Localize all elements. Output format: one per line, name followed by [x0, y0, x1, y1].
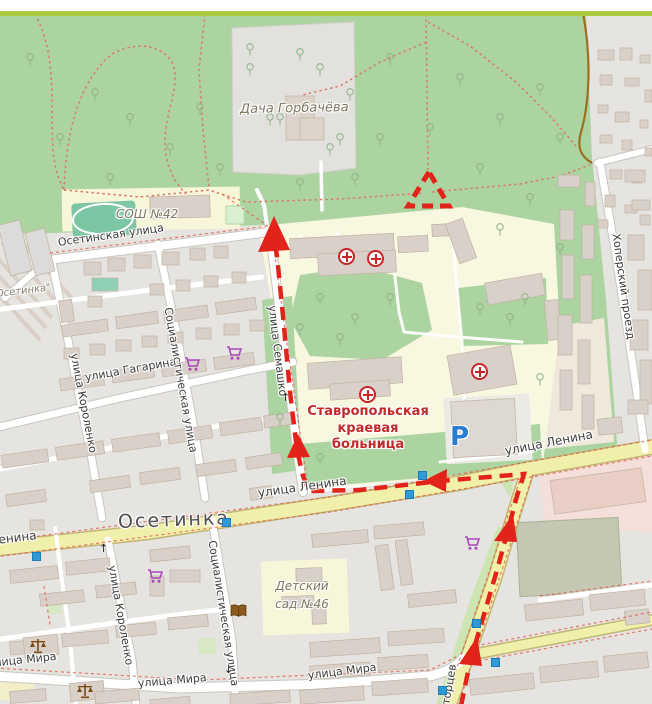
label-hospital-line1: Ставропольская — [298, 405, 438, 418]
label-school-42: СОШ №42 — [116, 208, 178, 220]
label-osetinka-district: Осетинка — [118, 509, 231, 532]
top-road-bar — [0, 11, 652, 16]
hospital-cross-icon[interactable] — [338, 248, 355, 265]
bus-stop-icon[interactable] — [405, 490, 414, 499]
hospital-cross-icon[interactable] — [471, 363, 488, 380]
label-dacha-gorbacheva: Дача Горбачёва — [240, 101, 349, 116]
courthouse-scales-icon[interactable] — [29, 637, 47, 659]
supermarket-cart-icon[interactable] — [464, 535, 480, 555]
label-detsky-sad-line2: сад №46 — [262, 598, 342, 610]
bus-stop-icon[interactable] — [438, 686, 447, 695]
courthouse-scales-icon[interactable] — [76, 682, 94, 704]
hospital-cross-icon[interactable] — [359, 386, 376, 403]
semashko-oneway-arrow: ↑ — [281, 392, 290, 403]
hospital-cross-icon[interactable] — [367, 250, 384, 267]
korolenko-oneway-arrow: ↑ — [99, 543, 108, 554]
library-book-icon[interactable] — [230, 604, 247, 623]
supermarket-cart-icon[interactable] — [184, 356, 200, 376]
map-canvas[interactable]: Дача Горбачёва СОШ №42 Осетинская улица … — [0, 0, 652, 704]
supermarket-cart-icon[interactable] — [226, 345, 242, 365]
label-hospital-line3: больница — [298, 438, 438, 451]
bus-stop-icon[interactable] — [32, 552, 41, 561]
label-detsky-sad-line1: Детский — [262, 580, 342, 592]
sotsialisticheskaya-oneway-arrow: ↓ — [224, 664, 233, 675]
supermarket-cart-icon[interactable] — [147, 568, 163, 588]
bus-stop-icon[interactable] — [491, 658, 500, 667]
bus-stop-icon[interactable] — [418, 471, 427, 480]
bus-stop-icon[interactable] — [222, 518, 231, 527]
label-hospital-line2: краевая — [298, 422, 438, 435]
bus-stop-icon[interactable] — [472, 619, 481, 628]
parking-icon[interactable]: P — [450, 424, 469, 450]
